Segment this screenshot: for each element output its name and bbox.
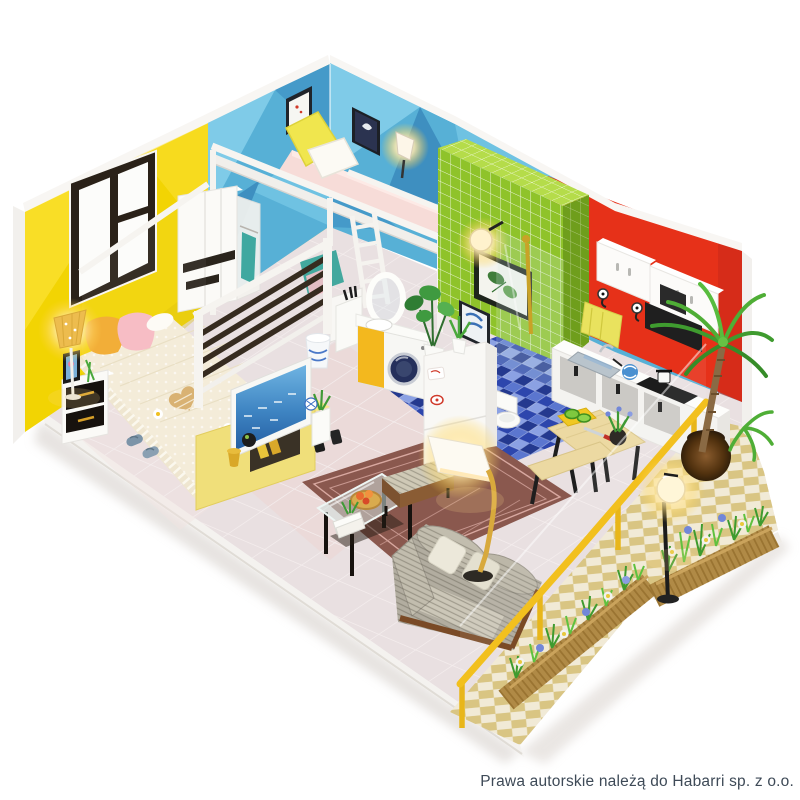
copyright-text: Prawa autorskie należą do Habarri sp. z …	[480, 773, 794, 791]
dollhouse-illustration	[0, 0, 800, 800]
dollhouse-product-photo: Prawa autorskie należą do Habarri sp. z …	[0, 0, 800, 800]
pink-pillow	[117, 312, 154, 350]
round-mirror	[369, 275, 403, 323]
